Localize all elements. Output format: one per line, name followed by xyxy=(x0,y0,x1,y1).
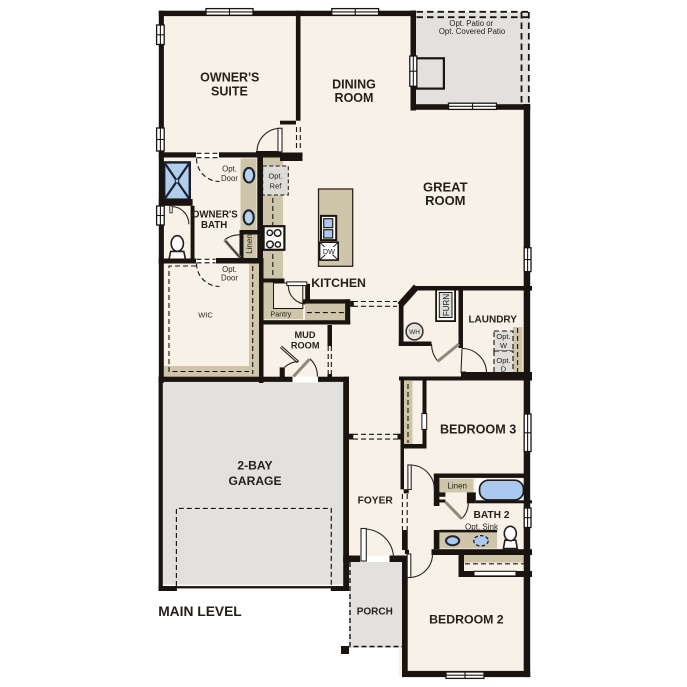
svg-text:OWNER'S: OWNER'S xyxy=(200,71,259,85)
svg-text:DINING: DINING xyxy=(332,78,376,92)
svg-text:Pantry: Pantry xyxy=(270,309,291,318)
svg-text:Opt. Covered Patio: Opt. Covered Patio xyxy=(439,27,506,36)
svg-text:PORCH: PORCH xyxy=(357,606,393,617)
svg-text:FURN: FURN xyxy=(442,294,451,316)
svg-text:FOYER: FOYER xyxy=(358,496,394,507)
svg-text:Linen: Linen xyxy=(447,482,467,491)
svg-text:Opt.: Opt. xyxy=(496,332,510,341)
svg-text:BEDROOM 3: BEDROOM 3 xyxy=(440,422,516,436)
svg-text:Opt.: Opt. xyxy=(222,265,237,274)
svg-text:GARAGE: GARAGE xyxy=(228,474,281,488)
svg-text:Door: Door xyxy=(221,174,238,183)
svg-text:GREAT: GREAT xyxy=(423,179,468,194)
svg-text:BATH: BATH xyxy=(201,220,227,231)
svg-text:ROOM: ROOM xyxy=(425,193,465,208)
svg-text:Linen: Linen xyxy=(245,234,254,254)
svg-text:2-BAY: 2-BAY xyxy=(237,458,272,472)
svg-text:ROOM: ROOM xyxy=(291,341,320,351)
svg-text:DW: DW xyxy=(323,247,335,256)
svg-text:ROOM: ROOM xyxy=(335,91,374,105)
svg-text:BEDROOM 2: BEDROOM 2 xyxy=(429,613,504,627)
svg-text:Door: Door xyxy=(221,274,238,283)
svg-text:KITCHEN: KITCHEN xyxy=(311,276,366,290)
svg-text:Opt. Sink: Opt. Sink xyxy=(465,522,499,531)
svg-text:MUD: MUD xyxy=(295,330,316,340)
svg-text:BATH 2: BATH 2 xyxy=(473,510,509,521)
svg-text:SUITE: SUITE xyxy=(211,85,248,99)
svg-text:WIC: WIC xyxy=(198,311,213,320)
svg-text:Ref: Ref xyxy=(270,182,283,191)
svg-text:Opt.: Opt. xyxy=(268,172,282,181)
svg-text:LAUNDRY: LAUNDRY xyxy=(468,314,517,325)
svg-text:W: W xyxy=(500,341,508,350)
svg-text:WH: WH xyxy=(409,329,420,336)
svg-text:Opt.: Opt. xyxy=(222,165,237,174)
svg-text:MAIN LEVEL: MAIN LEVEL xyxy=(158,604,242,619)
